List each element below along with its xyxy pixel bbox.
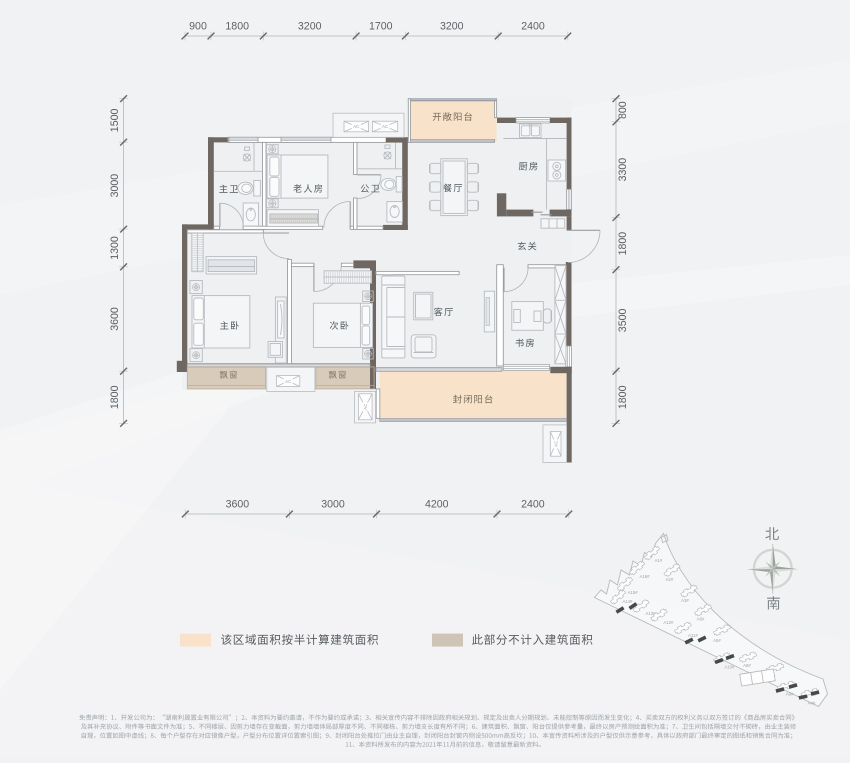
svg-text:A8#: A8#	[743, 663, 751, 668]
svg-text:A3#: A3#	[681, 598, 689, 603]
svg-text:A1#: A1#	[655, 558, 663, 563]
svg-text:AC: AC	[553, 441, 558, 447]
svg-text:1800: 1800	[617, 385, 629, 409]
svg-text:AC: AC	[285, 379, 291, 384]
svg-text:A2#: A2#	[666, 577, 674, 582]
svg-text:1800: 1800	[109, 385, 121, 409]
svg-text:A12#: A12#	[663, 620, 674, 625]
svg-text:1800: 1800	[617, 232, 629, 256]
svg-text:2400: 2400	[521, 499, 545, 511]
svg-text:3000: 3000	[109, 174, 121, 198]
svg-text:800: 800	[617, 101, 629, 119]
svg-text:A6#: A6#	[697, 617, 705, 622]
svg-text:A11#: A11#	[688, 633, 698, 638]
svg-text:3200: 3200	[440, 21, 464, 33]
svg-text:1700: 1700	[369, 21, 393, 33]
svg-text:A15#: A15#	[628, 590, 639, 595]
svg-text:1500: 1500	[109, 109, 121, 133]
svg-text:A16#: A16#	[639, 574, 650, 579]
svg-text:AC: AC	[353, 124, 359, 129]
svg-text:A10#: A10#	[724, 664, 735, 669]
svg-text:A5#: A5#	[713, 638, 721, 643]
svg-text:3600: 3600	[109, 307, 121, 331]
svg-text:AC: AC	[382, 124, 388, 129]
svg-text:1800: 1800	[225, 21, 249, 33]
svg-text:3000: 3000	[321, 499, 345, 511]
svg-text:2400: 2400	[521, 21, 545, 33]
svg-text:900: 900	[189, 21, 207, 33]
svg-text:4200: 4200	[425, 499, 449, 511]
svg-text:A14#: A14#	[622, 599, 633, 604]
svg-text:A4#: A4#	[808, 700, 816, 705]
svg-text:1300: 1300	[109, 236, 121, 260]
svg-text:AC: AC	[363, 404, 368, 410]
svg-text:3500: 3500	[617, 309, 629, 333]
svg-text:A9#: A9#	[786, 691, 794, 696]
svg-text:3200: 3200	[298, 21, 322, 33]
svg-text:3600: 3600	[226, 499, 250, 511]
svg-text:3300: 3300	[617, 158, 629, 182]
